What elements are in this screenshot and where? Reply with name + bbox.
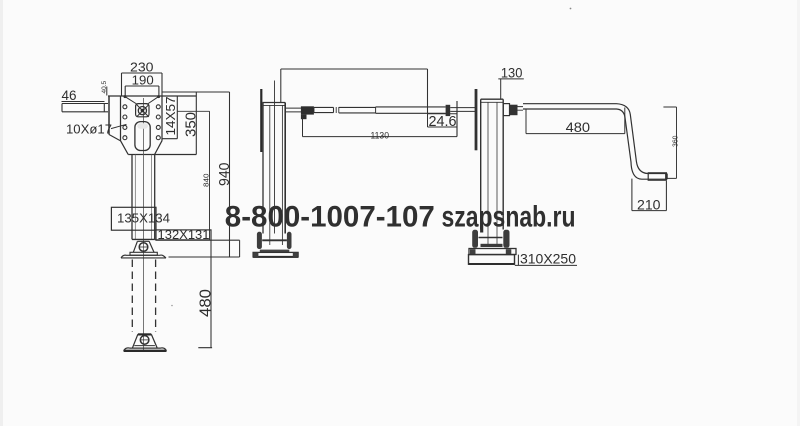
svg-text:szapsnab.ru: szapsnab.ru bbox=[442, 200, 576, 233]
svg-text:940: 940 bbox=[217, 163, 233, 187]
svg-text:46: 46 bbox=[62, 88, 77, 103]
svg-text:132X131: 132X131 bbox=[158, 228, 210, 242]
svg-text:360: 360 bbox=[673, 135, 680, 147]
svg-text:40.5: 40.5 bbox=[101, 80, 108, 93]
svg-text:190: 190 bbox=[132, 73, 154, 87]
svg-text:480: 480 bbox=[197, 289, 214, 317]
svg-text:130: 130 bbox=[501, 65, 523, 81]
svg-text:1130: 1130 bbox=[371, 131, 390, 141]
svg-text:8-800-1007-107: 8-800-1007-107 bbox=[225, 200, 435, 233]
svg-text:135X134: 135X134 bbox=[117, 211, 170, 225]
svg-text:310X250: 310X250 bbox=[520, 250, 576, 266]
svg-text:210: 210 bbox=[637, 196, 661, 212]
svg-text:10Xø17: 10Xø17 bbox=[66, 122, 112, 136]
svg-text:840: 840 bbox=[201, 174, 210, 188]
svg-text:24.6: 24.6 bbox=[429, 114, 457, 130]
svg-text:14X57: 14X57 bbox=[163, 97, 178, 136]
svg-text:480: 480 bbox=[566, 119, 591, 135]
svg-text:350: 350 bbox=[183, 112, 199, 137]
